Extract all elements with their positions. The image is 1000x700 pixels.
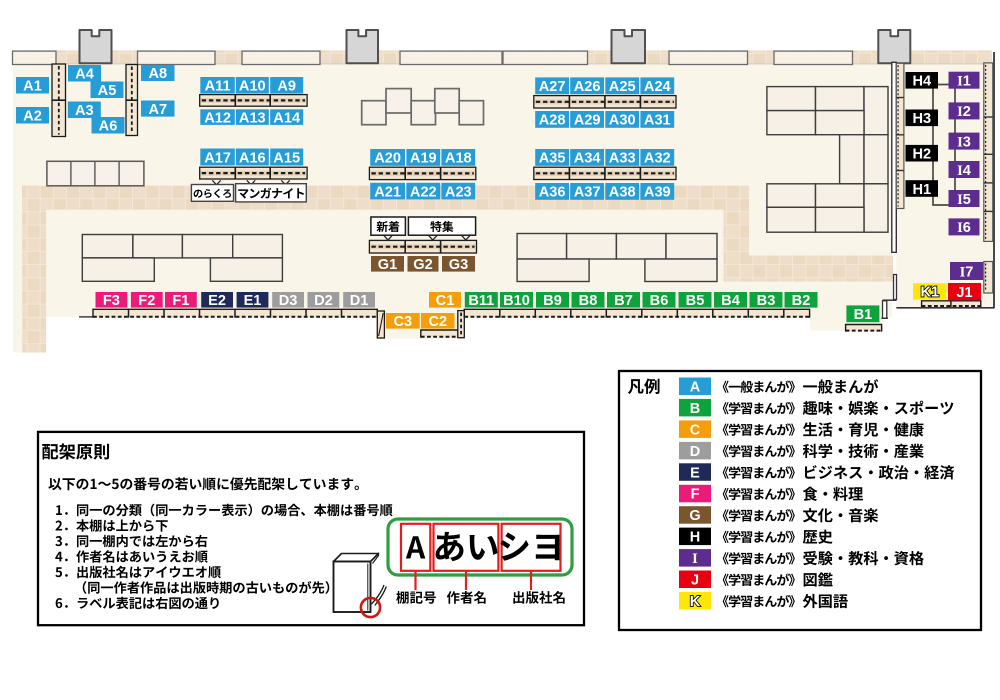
- svg-text:A38: A38: [609, 185, 636, 201]
- svg-text:A25: A25: [609, 79, 636, 95]
- svg-text:A17: A17: [204, 150, 231, 166]
- svg-text:A13: A13: [239, 110, 266, 126]
- svg-text:A26: A26: [574, 79, 601, 95]
- svg-text:I7: I7: [960, 264, 974, 280]
- svg-text:A16: A16: [239, 150, 266, 166]
- svg-text:B3: B3: [757, 293, 776, 309]
- svg-text:C1: C1: [436, 293, 455, 309]
- svg-text:A28: A28: [539, 113, 566, 129]
- svg-text:A24: A24: [644, 79, 672, 95]
- svg-text:A21: A21: [374, 184, 401, 200]
- svg-text:H3: H3: [912, 111, 931, 127]
- svg-text:A22: A22: [410, 184, 437, 200]
- svg-text:A27: A27: [539, 79, 566, 95]
- svg-text:A19: A19: [410, 151, 437, 167]
- svg-text:A35: A35: [539, 151, 566, 167]
- svg-text:B4: B4: [721, 293, 741, 309]
- svg-text:G1: G1: [378, 257, 397, 273]
- svg-text:A30: A30: [609, 113, 636, 129]
- svg-text:A31: A31: [644, 113, 671, 129]
- svg-text:G2: G2: [413, 257, 432, 273]
- svg-text:H2: H2: [912, 147, 931, 163]
- svg-text:A4: A4: [75, 67, 95, 83]
- svg-text:E2: E2: [208, 293, 226, 309]
- svg-text:D3: D3: [279, 293, 298, 309]
- svg-text:B9: B9: [543, 293, 562, 309]
- svg-text:A34: A34: [574, 151, 602, 167]
- svg-text:A5: A5: [98, 83, 117, 99]
- svg-text:F2: F2: [138, 293, 155, 309]
- svg-text:G3: G3: [449, 257, 468, 273]
- svg-text:B2: B2: [792, 293, 811, 309]
- svg-text:D1: D1: [350, 293, 369, 309]
- svg-text:K: K: [690, 594, 701, 610]
- svg-text:A6: A6: [99, 119, 118, 135]
- svg-text:A39: A39: [644, 185, 671, 201]
- svg-text:B11: B11: [468, 293, 494, 309]
- svg-text:I3: I3: [957, 134, 971, 150]
- svg-text:F1: F1: [172, 293, 189, 309]
- svg-text:A15: A15: [273, 150, 300, 166]
- svg-text:J: J: [691, 573, 699, 589]
- svg-text:A18: A18: [445, 151, 472, 167]
- svg-text:G: G: [689, 508, 700, 524]
- svg-text:H4: H4: [912, 74, 932, 90]
- svg-text:A37: A37: [574, 185, 601, 201]
- svg-text:H: H: [690, 530, 700, 546]
- svg-text:A8: A8: [148, 66, 167, 82]
- svg-text:B10: B10: [503, 293, 530, 309]
- svg-text:A11: A11: [205, 79, 231, 95]
- svg-text:K1: K1: [920, 285, 939, 301]
- svg-text:A2: A2: [23, 109, 42, 125]
- svg-text:I5: I5: [957, 192, 971, 208]
- svg-text:A1: A1: [23, 79, 42, 95]
- svg-text:J1: J1: [956, 285, 972, 301]
- svg-text:C: C: [690, 422, 701, 438]
- svg-text:B1: B1: [854, 307, 873, 323]
- svg-text:A9: A9: [277, 79, 296, 95]
- svg-text:A10: A10: [239, 79, 266, 95]
- svg-text:A12: A12: [204, 110, 231, 126]
- svg-text:D: D: [690, 444, 700, 460]
- svg-text:A23: A23: [445, 184, 472, 200]
- svg-text:A29: A29: [574, 113, 601, 129]
- svg-text:B8: B8: [579, 293, 598, 309]
- svg-text:A20: A20: [374, 151, 401, 167]
- svg-text:E: E: [690, 465, 700, 481]
- svg-text:I6: I6: [957, 220, 971, 236]
- svg-text:A36: A36: [539, 185, 566, 201]
- svg-text:A3: A3: [75, 103, 94, 119]
- svg-text:A33: A33: [609, 151, 636, 167]
- svg-text:E1: E1: [244, 293, 262, 309]
- svg-text:C3: C3: [393, 314, 412, 330]
- svg-text:A32: A32: [644, 151, 671, 167]
- svg-text:I4: I4: [957, 163, 972, 179]
- svg-text:B5: B5: [686, 293, 705, 309]
- svg-text:F3: F3: [103, 293, 120, 309]
- svg-text:I2: I2: [957, 104, 971, 120]
- svg-text:D2: D2: [314, 293, 333, 309]
- svg-text:H1: H1: [912, 182, 931, 198]
- svg-text:A7: A7: [148, 102, 167, 118]
- svg-text:A14: A14: [273, 110, 301, 126]
- svg-text:A: A: [690, 380, 701, 396]
- svg-text:B: B: [690, 401, 700, 417]
- svg-text:B7: B7: [614, 293, 633, 309]
- svg-text:F: F: [691, 487, 700, 503]
- svg-text:B6: B6: [650, 293, 669, 309]
- svg-text:I: I: [692, 551, 698, 567]
- svg-text:I1: I1: [957, 74, 971, 90]
- svg-text:C2: C2: [428, 314, 447, 330]
